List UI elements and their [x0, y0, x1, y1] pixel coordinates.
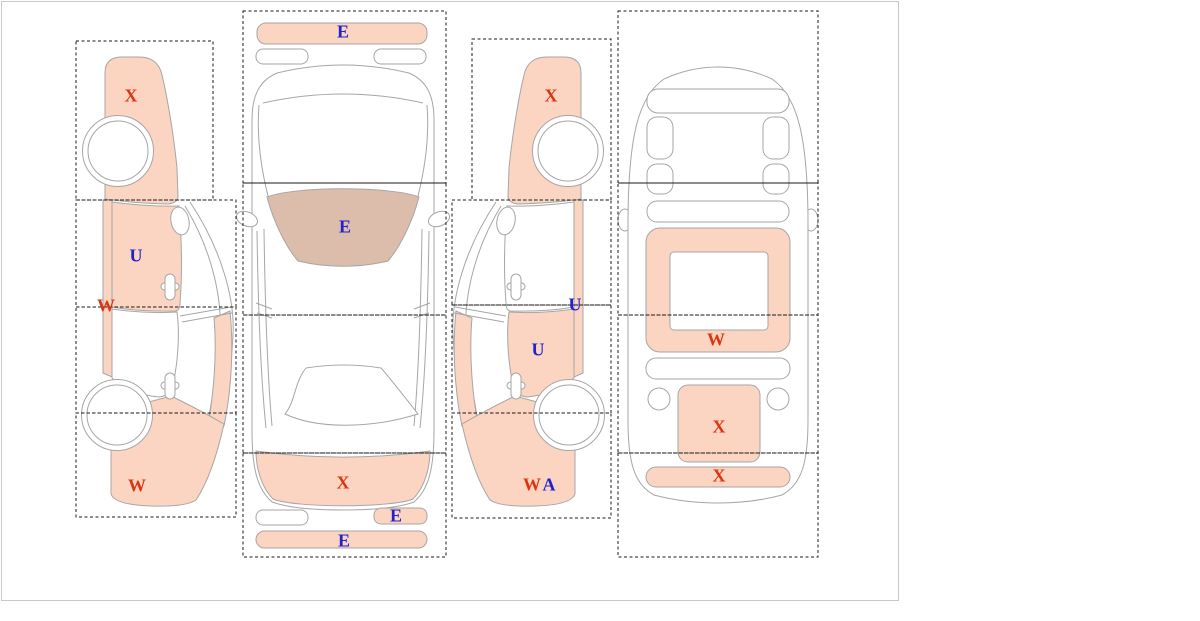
rear-deck — [256, 451, 430, 506]
mid-band — [647, 201, 789, 222]
headlight-left — [256, 49, 308, 64]
rear-view — [618, 67, 818, 503]
trunk-edge-band — [646, 358, 790, 379]
diagram-art — [0, 0, 1200, 621]
light-left — [648, 388, 670, 410]
rear-bumper — [256, 531, 427, 548]
top-view — [234, 23, 452, 548]
pillar-right-lower — [763, 164, 789, 194]
pillar-left-lower — [647, 164, 673, 194]
front-bumper — [257, 23, 427, 44]
rear-bumper — [646, 467, 790, 487]
taillight-right — [374, 508, 427, 524]
roof-band — [647, 89, 789, 113]
right-side-view — [453, 57, 605, 506]
vehicle-damage-diagram: X U W W E E X E E X U U W A W X X — [0, 0, 1200, 621]
left-side-view — [82, 57, 234, 506]
trunk-panel — [678, 385, 760, 462]
headlight-right — [374, 49, 426, 64]
taillight-left — [256, 510, 308, 525]
pillar-right-upper — [763, 117, 789, 159]
car-body-top — [252, 65, 434, 510]
light-right — [767, 388, 789, 410]
rear-window-glass — [670, 252, 768, 330]
pillar-left-upper — [647, 117, 673, 159]
